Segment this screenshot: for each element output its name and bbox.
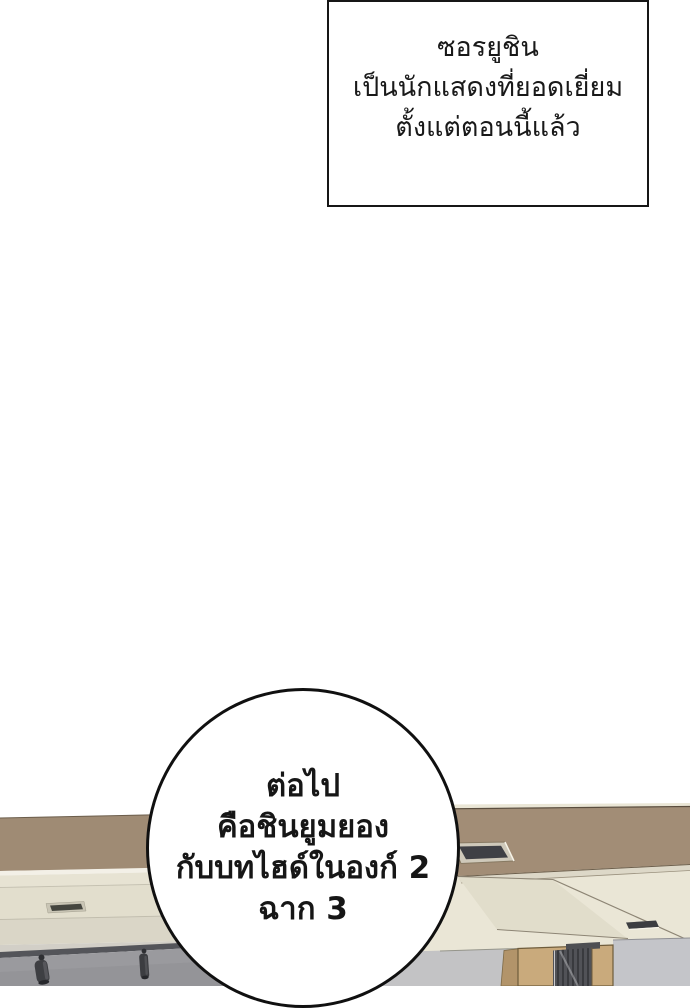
bubble-line-2: คือชินยูมยอง <box>217 807 389 848</box>
narration-line-2: เป็นนักแสดงที่ยอดเยี่ยม <box>353 68 623 108</box>
air-vent-left <box>46 902 86 914</box>
recessed-vent-right <box>452 842 514 864</box>
speech-bubble: ต่อไป คือชินยูมยอง กับบทไฮด์ในองก์ 2 ฉาก… <box>146 688 460 1008</box>
comic-panel: ซอรยูชิน เป็นนักแสดงที่ยอดเยี่ยม ตั้งแต่… <box>0 0 690 986</box>
cabinet-grille <box>553 948 592 987</box>
bubble-line-1: ต่อไป <box>266 766 340 807</box>
cabinet <box>501 942 613 986</box>
bubble-line-3: กับบทไฮด์ในองก์ 2 <box>176 848 430 889</box>
narration-box: ซอรยูชิน เป็นนักแสดงที่ยอดเยี่ยม ตั้งแต่… <box>327 0 649 207</box>
narration-line-3: ตั้งแต่ตอนนี้แล้ว <box>395 108 580 148</box>
narration-line-1: ซอรยูชิน <box>437 28 539 68</box>
bubble-line-4: ฉาก 3 <box>258 889 348 930</box>
wall-right <box>613 938 690 986</box>
